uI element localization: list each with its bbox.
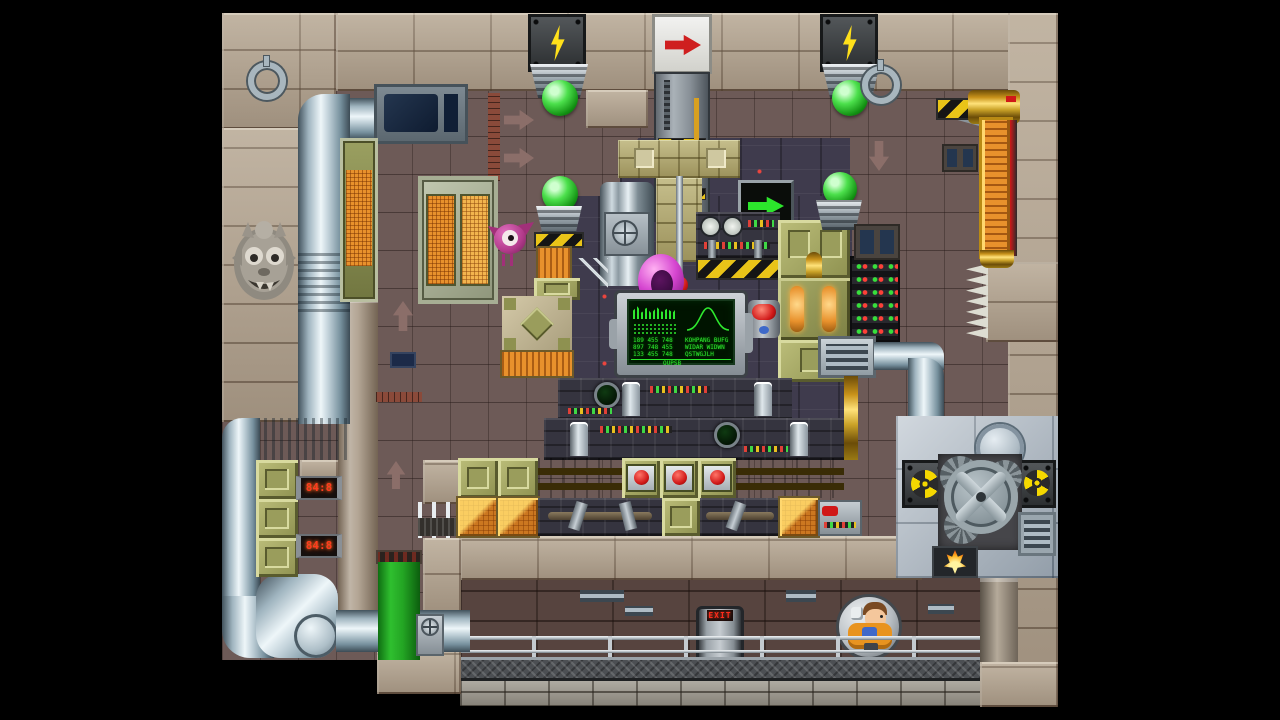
brick-strip xyxy=(376,392,422,402)
metal-pillar xyxy=(980,578,1018,666)
window-pair xyxy=(942,144,978,172)
lightning-sign xyxy=(528,14,586,72)
wall-vent xyxy=(580,590,624,602)
stone-block xyxy=(423,538,461,614)
gold-machine-head[interactable] xyxy=(968,90,1020,124)
olive-column-inset xyxy=(788,230,810,258)
crate[interactable] xyxy=(256,460,298,499)
canister xyxy=(790,422,808,456)
crate[interactable] xyxy=(498,458,538,498)
hazard-bar-post xyxy=(708,240,716,260)
hydrant-dome xyxy=(752,304,776,320)
sprayer-nozzle xyxy=(822,506,838,516)
hydrant-light xyxy=(759,326,769,334)
glow-slot xyxy=(822,286,836,332)
radiation-trefoil-icon xyxy=(911,470,939,498)
stone-block xyxy=(423,460,461,504)
vent-panel xyxy=(1018,512,1056,556)
screen-numbers: 897 748 455 xyxy=(633,344,673,351)
puzzle-block-grate-base xyxy=(502,352,572,376)
railing-posts xyxy=(460,636,1008,658)
enemy-pupil xyxy=(508,235,514,241)
monitor-side-tab xyxy=(745,313,753,353)
indicator-lights xyxy=(600,426,672,433)
grate-orange xyxy=(346,170,372,266)
screen-row: 133 455 748 xyxy=(633,351,673,358)
metal-walkway xyxy=(460,657,1008,681)
wall-vent xyxy=(786,590,816,602)
wall-vent xyxy=(625,606,653,616)
orange-rail-cap xyxy=(980,250,1014,268)
timer-display: 84:8 xyxy=(296,534,342,558)
gem-pedestal xyxy=(536,206,582,234)
pipe-vertical-lower xyxy=(222,418,260,618)
conveyor-rail[interactable] xyxy=(736,458,844,498)
gear-wheel-big[interactable] xyxy=(944,460,1018,534)
window-box xyxy=(374,84,468,144)
crate-machine[interactable] xyxy=(418,176,498,304)
pipe-down-right xyxy=(908,358,944,422)
puzzle-block[interactable] xyxy=(502,296,572,352)
window-dark xyxy=(860,230,874,254)
lightning-bolt-icon xyxy=(547,25,569,61)
crate-orange[interactable] xyxy=(498,498,538,536)
screen-dots xyxy=(633,323,677,334)
piston-machinery xyxy=(700,498,780,536)
screen-numbers: 189 455 748 xyxy=(633,337,673,344)
pit-darkness xyxy=(460,706,1008,720)
screen-words: KOHPANG BUFG xyxy=(685,337,728,344)
stone-ledge xyxy=(460,536,922,580)
stone-spike-block xyxy=(986,262,1058,342)
glow-slot xyxy=(790,286,804,332)
khaki-inset-plate xyxy=(634,148,654,168)
gargoyle-carving xyxy=(230,214,298,306)
window-dark xyxy=(947,149,957,167)
screen-words: QSTWGJLH xyxy=(685,351,714,358)
canister xyxy=(570,422,588,456)
sprayer-device xyxy=(818,500,862,536)
screen-row: QSTWGJLH xyxy=(685,351,714,358)
gauge-dial xyxy=(724,218,741,235)
player-mug xyxy=(851,607,863,620)
crate[interactable] xyxy=(458,458,498,498)
screen-histogram xyxy=(633,305,677,319)
wall-ring-stem xyxy=(878,60,883,70)
red-button-cap[interactable] xyxy=(634,470,649,485)
vent-box xyxy=(818,336,876,378)
screen-curve xyxy=(685,303,731,333)
crate-machine-grate xyxy=(428,196,454,284)
exit-sign: EXIT xyxy=(707,610,733,621)
crate-orange[interactable] xyxy=(780,498,818,536)
wall-ring-icon xyxy=(862,66,900,104)
khaki-inset-plate xyxy=(706,148,726,168)
olive-column-mid xyxy=(778,278,850,340)
screen-row: 897 748 455 xyxy=(633,344,673,351)
piston-machinery xyxy=(538,498,662,536)
furnace-panel xyxy=(932,546,978,578)
red-button-cap[interactable] xyxy=(710,470,725,485)
crate[interactable] xyxy=(256,499,298,538)
radar-screen xyxy=(714,422,740,448)
screen-row: KOHPANG BUFG xyxy=(685,337,728,344)
indicator-rack xyxy=(850,256,900,342)
pipe-flange xyxy=(294,614,338,658)
puzzle-block-corner xyxy=(558,298,570,310)
indicator-lights xyxy=(568,408,612,414)
puzzle-block-corner xyxy=(504,298,516,310)
flame-icon xyxy=(944,550,966,574)
vent-slats xyxy=(1024,520,1050,548)
radiation-sign xyxy=(1018,460,1056,508)
red-button-cap[interactable] xyxy=(672,470,687,485)
stone-block-bottom-right xyxy=(980,662,1058,707)
machinery-row xyxy=(558,378,792,420)
crate-machine-grate xyxy=(462,196,488,284)
bolt-device[interactable] xyxy=(416,614,444,656)
bolt-cross-bar xyxy=(423,626,437,628)
pedestal-grate xyxy=(538,248,570,278)
wall-ring-icon xyxy=(248,62,286,100)
crate-orange[interactable] xyxy=(458,498,498,536)
window-dark xyxy=(444,94,458,132)
canister xyxy=(622,382,640,416)
radiation-trefoil-icon xyxy=(1024,470,1050,496)
enemy-legs xyxy=(502,254,518,266)
screen-numbers: 133 455 748 xyxy=(633,351,673,358)
wall-vent xyxy=(928,604,954,614)
timer-display: 84:8 xyxy=(296,476,342,500)
red-arrow-sign xyxy=(652,14,712,74)
gold-machine-light xyxy=(1006,96,1016,102)
orange-rail-stripe xyxy=(1010,120,1017,256)
slime-waterfall xyxy=(378,562,420,660)
monitor-side-tab xyxy=(609,319,617,349)
hazard-bar xyxy=(696,258,782,280)
crate[interactable] xyxy=(662,498,700,536)
mini-fence-mesh xyxy=(418,518,462,536)
floor-bricks xyxy=(460,681,1008,707)
orange-rail xyxy=(982,120,1010,256)
stone-block-top-mid xyxy=(586,90,648,128)
gold-rail-vertical xyxy=(844,376,858,460)
hazard-bar-post xyxy=(754,240,762,260)
indicator-lights xyxy=(748,220,774,227)
screen-row: 189 455 748 xyxy=(633,337,673,344)
window-dark xyxy=(963,149,973,167)
olive-column-inset xyxy=(820,230,842,258)
brick-ladder-strip xyxy=(488,93,500,181)
player-eye xyxy=(880,615,883,618)
puzzle-block-diamond xyxy=(520,307,554,341)
screen-row: WIDAR WIDWN xyxy=(685,344,725,351)
indicator-lights xyxy=(824,522,856,528)
lightning-sign xyxy=(820,14,878,72)
window-pair xyxy=(854,224,900,260)
crate[interactable] xyxy=(256,538,298,577)
gauge-dial xyxy=(702,218,719,235)
wall-ring-stem xyxy=(264,56,269,66)
piston-arm xyxy=(548,512,652,520)
radar-screen xyxy=(594,382,620,408)
boiler-dial-cross xyxy=(614,232,636,234)
railing-mid-rail xyxy=(460,650,1008,653)
enemy-flyer[interactable] xyxy=(488,220,534,270)
machine-cable xyxy=(664,80,670,130)
indicator-lights xyxy=(650,386,710,393)
window-dark xyxy=(384,94,438,132)
mini-fence xyxy=(418,502,462,538)
monitor: 189 455 748 897 748 455 133 455 748 KOHP… xyxy=(614,290,748,378)
puzzle-block-corner xyxy=(558,338,570,350)
canister xyxy=(754,382,772,416)
wall-plaque xyxy=(390,352,416,368)
green-gem[interactable] xyxy=(542,80,578,116)
gear-hub xyxy=(976,492,986,502)
pedestal-hazard-band xyxy=(534,232,584,248)
game-viewport[interactable]: EXIT xyxy=(0,0,1280,720)
screen-words: WIDAR WIDWN xyxy=(685,344,725,351)
puzzle-block-corner xyxy=(504,338,516,350)
vent-slats xyxy=(826,344,868,370)
lightning-bolt-icon xyxy=(839,25,861,61)
window-dark xyxy=(880,230,894,254)
red-arrow-icon xyxy=(665,33,701,57)
indicator-lights xyxy=(744,446,788,452)
conveyor-rail[interactable] xyxy=(538,458,622,498)
monitor-screen: 189 455 748 897 748 455 133 455 748 KOHP… xyxy=(627,299,735,365)
screen-footer: QUPSB xyxy=(663,360,681,365)
grate-column xyxy=(340,138,378,302)
machinery-row xyxy=(544,418,852,460)
